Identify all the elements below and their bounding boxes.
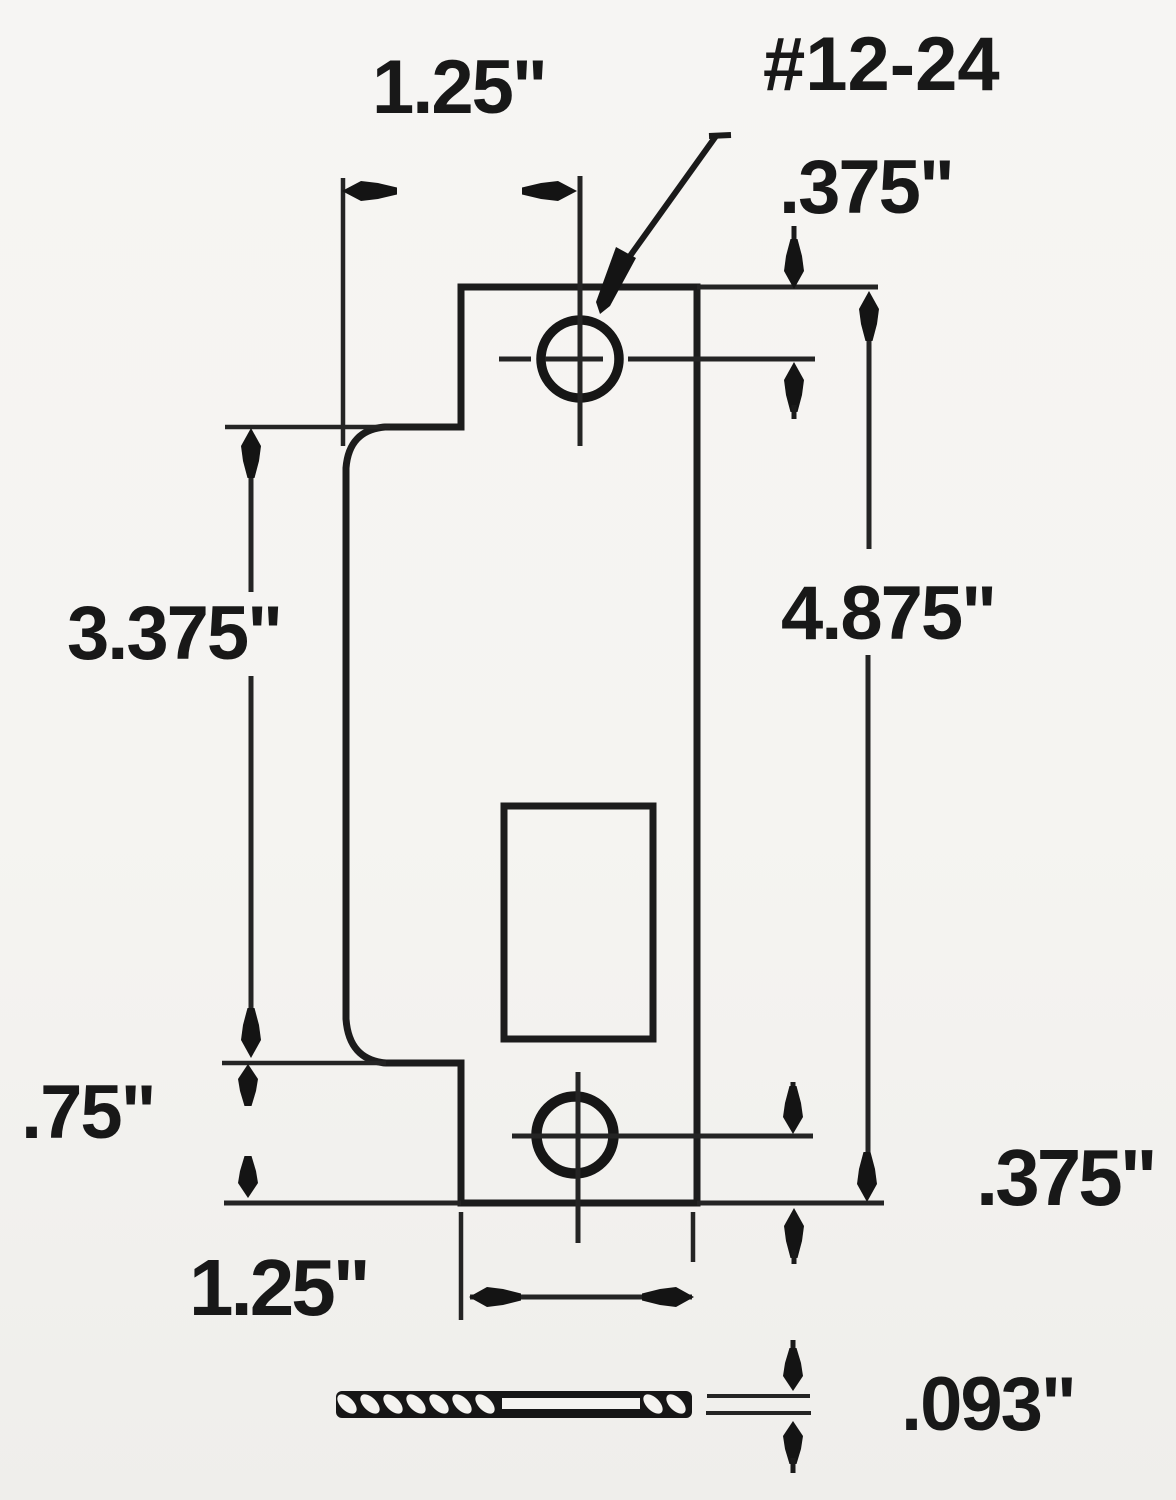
svg-text:3.375": 3.375" (67, 591, 281, 676)
svg-text:1.25": 1.25" (189, 1243, 368, 1332)
svg-text:4.875": 4.875" (781, 571, 995, 656)
svg-text:1.25": 1.25" (372, 45, 546, 130)
svg-text:.75": .75" (21, 1070, 155, 1155)
svg-text:.375": .375" (779, 145, 953, 230)
svg-text:.375": .375" (976, 1133, 1155, 1222)
svg-text:.093": .093" (901, 1362, 1075, 1447)
svg-text:#12-24: #12-24 (763, 22, 1000, 107)
